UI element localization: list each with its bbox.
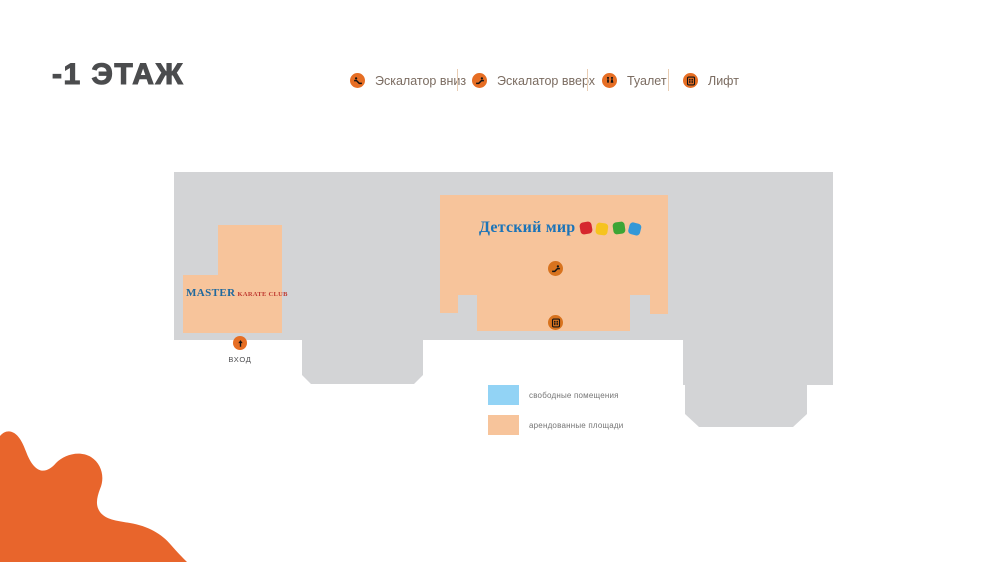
detsky-mir-logo: Детский мир bbox=[479, 218, 641, 238]
rented-space-label: арендованные площади bbox=[529, 421, 623, 430]
entrance-icon bbox=[233, 336, 247, 350]
escalator-up-icon bbox=[548, 261, 563, 276]
rented-space-swatch bbox=[488, 415, 519, 435]
logo-square-yellow bbox=[595, 222, 609, 236]
floor-plan-page: -1 ЭТАЖ Эскалатор вниз Эскалатор вверх Т… bbox=[0, 0, 1000, 562]
free-space-label: свободные помещения bbox=[529, 391, 619, 400]
detsky-mir-logo-text: Детский мир bbox=[479, 219, 575, 237]
logo-square-blue bbox=[628, 222, 643, 237]
master-karate-club-logo: MASTER KARATE CLUB bbox=[186, 287, 288, 299]
logo-square-green bbox=[612, 221, 626, 235]
master-logo-text: MASTER bbox=[186, 287, 235, 299]
logo-square-red bbox=[579, 221, 593, 235]
entrance-label: ВХОД bbox=[210, 355, 270, 364]
floor-plan-canvas bbox=[0, 0, 1000, 562]
karate-club-logo-text: KARATE CLUB bbox=[237, 291, 287, 298]
decorative-orange-blob bbox=[0, 431, 187, 562]
free-space-swatch bbox=[488, 385, 519, 405]
lift-icon bbox=[548, 315, 563, 330]
